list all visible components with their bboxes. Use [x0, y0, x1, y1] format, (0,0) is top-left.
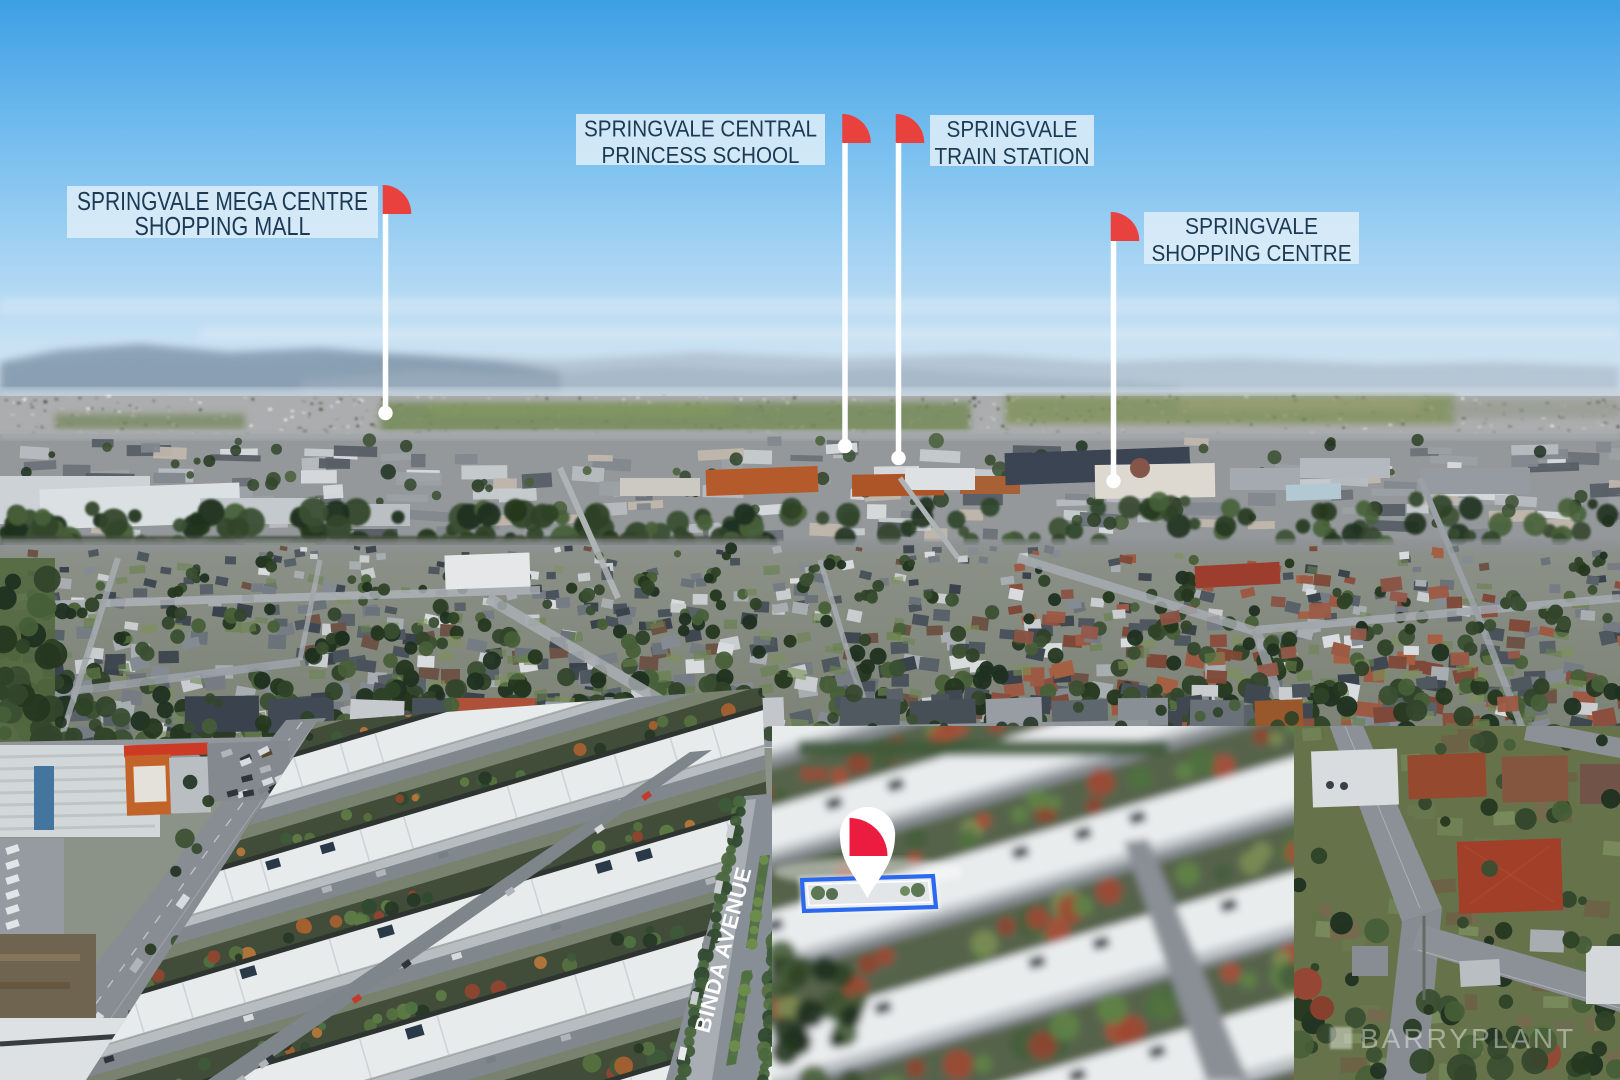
svg-text:SPRINGVALE: SPRINGVALE — [1185, 213, 1318, 239]
svg-text:PRINCESS SCHOOL: PRINCESS SCHOOL — [602, 142, 800, 168]
svg-text:SPRINGVALE: SPRINGVALE — [947, 116, 1078, 142]
svg-text:BARRYPLANT: BARRYPLANT — [1360, 1023, 1576, 1054]
svg-text:SHOPPING CENTRE: SHOPPING CENTRE — [1152, 240, 1352, 266]
svg-text:TRAIN STATION: TRAIN STATION — [935, 143, 1090, 169]
svg-text:SHOPPING MALL: SHOPPING MALL — [135, 211, 311, 241]
svg-text:SPRINGVALE CENTRAL: SPRINGVALE CENTRAL — [584, 115, 817, 141]
